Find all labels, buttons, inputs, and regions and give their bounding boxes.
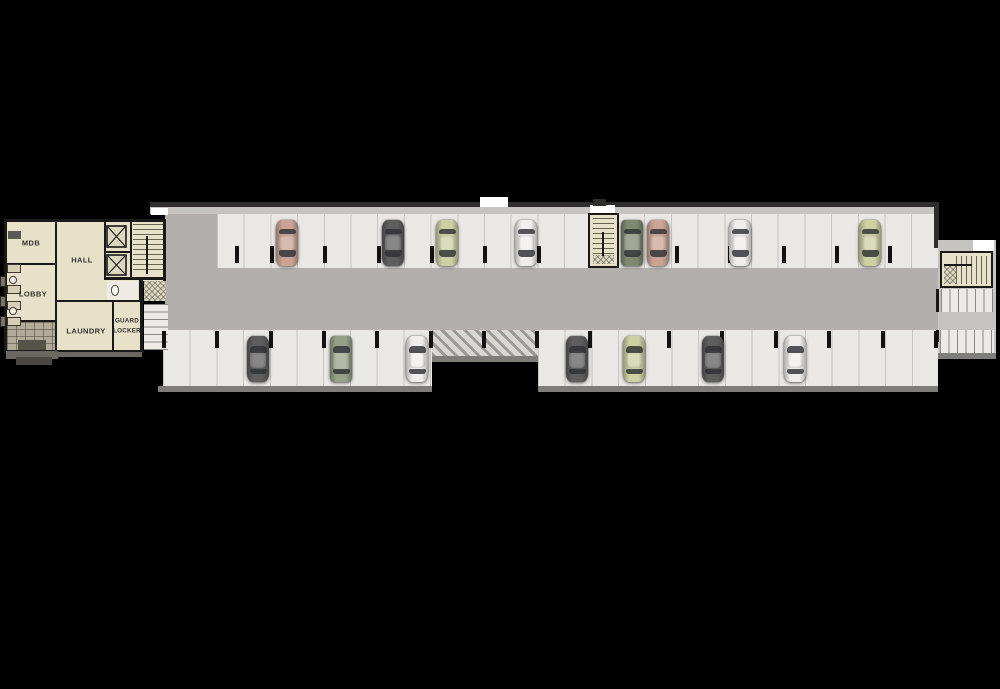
structural-column (375, 331, 379, 348)
parked-car-dark_gray (566, 336, 588, 382)
ramp-hatch-left (144, 281, 166, 301)
car-glassr (569, 369, 586, 374)
curb-bottom-left (158, 386, 432, 392)
structural-column (667, 331, 671, 348)
wall-wc-right (139, 280, 141, 302)
car-glassf (787, 346, 804, 353)
parked-car-dark_gray (247, 336, 269, 382)
car-glassf (409, 346, 426, 353)
room-label-laundry: LAUNDRY (66, 327, 105, 336)
structural-column (782, 246, 786, 263)
stair-inner-wall (146, 236, 148, 274)
stair-vent-bump (593, 199, 606, 206)
car-glassf (250, 346, 267, 353)
parking-row-bottom-left (163, 330, 432, 387)
structural-column (537, 246, 541, 263)
parked-car-pale_green (623, 336, 645, 382)
car-glassr (250, 369, 267, 374)
motorcycle-parking-right-top (941, 289, 993, 312)
parked-car-white (406, 336, 428, 382)
car-glassr (409, 369, 426, 374)
stair-inner-wall (944, 264, 972, 266)
planter (0, 276, 6, 287)
room-label-hall: HALL (71, 256, 93, 265)
structural-column (535, 331, 539, 348)
car-glassr (732, 229, 749, 234)
parked-car-dark_gray (702, 336, 724, 382)
structural-column (835, 246, 839, 263)
stairwell-left (133, 222, 163, 277)
parked-car-white (784, 336, 806, 382)
room-label-guard: GUARD (115, 318, 139, 325)
car-glassf (626, 346, 643, 353)
bench (7, 317, 21, 326)
car-glassr (624, 229, 641, 234)
block-wall-right-upper (163, 219, 166, 281)
car-glassr (787, 369, 804, 374)
parked-car-salmon (647, 220, 669, 266)
walkway-strip (150, 207, 938, 214)
wall-between-elevators (105, 251, 131, 253)
structural-column (774, 331, 778, 348)
right-wing-notch (973, 240, 994, 251)
top-notch-a (480, 197, 508, 207)
structural-column (269, 331, 273, 348)
parked-car-salmon (276, 220, 298, 266)
car-glassf (569, 346, 586, 353)
structural-column (270, 246, 274, 263)
wall-hall-laundry (56, 300, 142, 302)
car-glassf (862, 250, 879, 257)
car-glassf (333, 346, 350, 353)
structural-column (430, 246, 434, 263)
stair-treads (956, 256, 989, 284)
car-roof (250, 351, 266, 368)
structural-column (235, 246, 239, 263)
curb-under-laundry (58, 352, 142, 357)
curb-bottom-right (538, 386, 938, 392)
car-glassr (705, 369, 722, 374)
structural-column (482, 331, 486, 348)
car-glassf (650, 250, 667, 257)
drive-aisle (165, 268, 938, 330)
car-glassf (439, 250, 456, 257)
car-glassr (385, 229, 402, 234)
room-label-mdb: MDB (22, 239, 40, 248)
parked-car-van_green (330, 336, 352, 382)
structural-column (162, 331, 166, 348)
planter (0, 296, 6, 307)
car-glassr (439, 229, 456, 234)
car-glassf (385, 250, 402, 257)
structural-column (827, 331, 831, 348)
stair-room-mid (588, 213, 619, 268)
planter (0, 316, 6, 327)
stair-hatch (593, 255, 614, 264)
top-notch-c (151, 208, 168, 215)
wing-wall (936, 289, 939, 312)
bench (7, 264, 21, 273)
room-label-locker: LOCKER (113, 328, 141, 335)
car-roof (409, 351, 425, 368)
car-glassr (862, 229, 879, 234)
wall-elevator-stair (130, 221, 132, 279)
car-glassr (626, 369, 643, 374)
car-roof (705, 351, 721, 368)
entrance-mat (18, 340, 46, 350)
car-glassf (279, 250, 296, 257)
motorcycle-parking-right-bottom (940, 330, 994, 353)
structural-column (322, 331, 326, 348)
stair-hatch (944, 266, 956, 284)
parked-car-pale_green (436, 220, 458, 266)
car-glassr (333, 369, 350, 374)
entrance-step-lower (16, 357, 52, 365)
wall-lobby-hall (55, 221, 57, 350)
structural-column (675, 246, 679, 263)
car-roof (569, 351, 585, 368)
stair-room-right (940, 251, 993, 288)
car-glassf (518, 250, 535, 257)
mdb-equipment (8, 231, 21, 239)
parked-car-suv_green (621, 220, 643, 266)
wall-laundry-guard (112, 302, 114, 350)
car-roof (626, 351, 642, 368)
drive-aisle-left (165, 214, 217, 268)
structural-column (323, 246, 327, 263)
structural-column (377, 246, 381, 263)
table (9, 307, 17, 315)
parked-car-dark_gray (382, 220, 404, 266)
stair-treads (133, 224, 163, 274)
car-glassr (279, 229, 296, 234)
car-glassf (705, 346, 722, 353)
parking-row-bottom-right (538, 330, 938, 387)
car-glassf (624, 250, 641, 257)
structural-column (429, 331, 433, 348)
elevator-icon (106, 225, 127, 248)
structural-column (588, 331, 592, 348)
stair-inner-wall (602, 232, 604, 256)
structural-column (934, 331, 938, 348)
floor-plan-canvas: MDB HALL LOBBY LAUNDRY GUARD LOCKER (0, 0, 1000, 689)
toilet-icon (111, 285, 119, 296)
parked-car-white (729, 220, 751, 266)
wall-elevator-bottom (104, 277, 166, 280)
car-glassr (518, 229, 535, 234)
table (9, 276, 17, 284)
structural-column (483, 246, 487, 263)
elevator-icon (106, 254, 127, 276)
ramp-curb (432, 356, 538, 362)
structural-column (881, 331, 885, 348)
structural-column (215, 331, 219, 348)
room-label-lobby: LOBBY (19, 290, 47, 299)
parked-car-pale_green (859, 220, 881, 266)
structural-column (888, 246, 892, 263)
parked-car-white (515, 220, 537, 266)
car-roof (787, 351, 803, 368)
car-glassf (732, 250, 749, 257)
car-glassr (650, 229, 667, 234)
right-wing-curb (938, 353, 996, 359)
